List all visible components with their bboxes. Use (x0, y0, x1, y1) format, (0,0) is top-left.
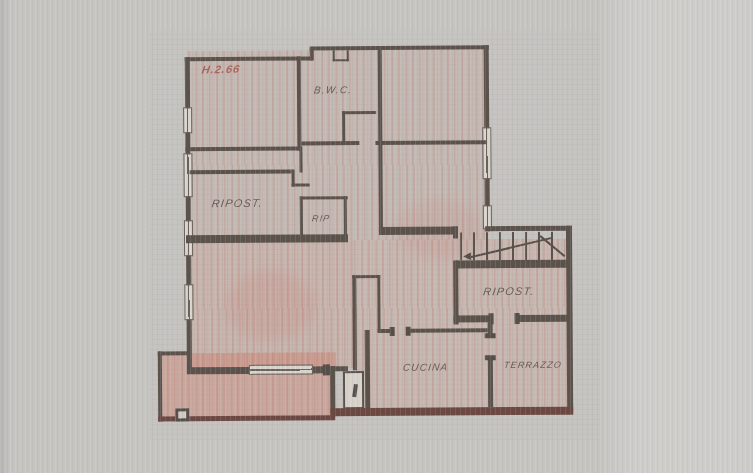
wall-stair-left-upper (453, 226, 458, 238)
wall-ripost-step-h (292, 183, 310, 186)
wall-rip-box-left (300, 197, 303, 239)
wall-rip-box-top (300, 196, 348, 199)
wall-midright-room-left (378, 141, 383, 235)
pink-smudge (225, 270, 315, 341)
photo-shadow-edge (0, 0, 10, 473)
wall-under-stairs-thick (455, 260, 567, 269)
wall-bwc-right (378, 46, 383, 145)
wall-bwc-bottom-left (301, 141, 359, 145)
wall-living-bottom-left (187, 367, 249, 374)
wall-ripost2-bottom-right (517, 315, 569, 322)
room-label-bwc: B.W.C. (313, 84, 353, 95)
wall-kitchen-top-right (410, 328, 488, 333)
floorplan-photo: H.2.66 B.W.C. RIPOST. RIP RIPOST. CUCINA… (0, 0, 753, 473)
wall-ripost-top (190, 170, 292, 175)
wall-bwc-nib-h (342, 111, 376, 114)
room-label-rip: RIP (311, 213, 331, 223)
balcony-corner-post (175, 408, 189, 421)
wall-shaft-left (352, 275, 357, 370)
wall-bedroom-bwc-divider (297, 57, 302, 151)
window-wide (249, 364, 313, 374)
wall-hall-thick (379, 226, 458, 235)
door-post (485, 333, 496, 338)
wall-stair-top (485, 226, 572, 232)
wall-vestibule-left (330, 366, 335, 414)
height-annotation: H.2.66 (201, 63, 241, 76)
window (482, 127, 491, 179)
room-label-ripost-right: RIPOST. (483, 285, 536, 297)
wall-rip-box-right (344, 196, 347, 238)
wall-bwc-nib-v (342, 111, 345, 143)
wall-bottom-main (330, 407, 573, 417)
door-post (390, 327, 395, 336)
wall-top-notch (333, 50, 349, 61)
door-post (515, 313, 520, 324)
wall-vestibule-right (365, 330, 371, 414)
wall-shaft-top (352, 275, 380, 278)
wall-bwc-bottom-right (375, 140, 486, 145)
wall-ripost-bottom-thick (186, 234, 348, 243)
stairs-arrowhead-icon (463, 252, 471, 260)
door-post (485, 355, 496, 360)
photo-light-band (600, 0, 753, 473)
wall-balcony-left (158, 352, 162, 422)
wall-bedroom-bottom (185, 147, 301, 152)
door-post (406, 327, 411, 336)
room-label-terrazzo: TERRAZZO (503, 360, 562, 370)
window (183, 107, 192, 133)
wall-balcony-top (158, 351, 191, 355)
wall-corridor-connector (299, 147, 302, 173)
room-label-ripost-left: RIPOST. (211, 197, 264, 209)
wall-ripost2-bottom-left (454, 315, 491, 322)
wall-shaft-right (377, 275, 380, 332)
window (183, 153, 192, 197)
wall-terrace-left-bottom (488, 358, 493, 407)
window (184, 284, 193, 320)
room-label-cucina: CUCINA (402, 361, 449, 372)
